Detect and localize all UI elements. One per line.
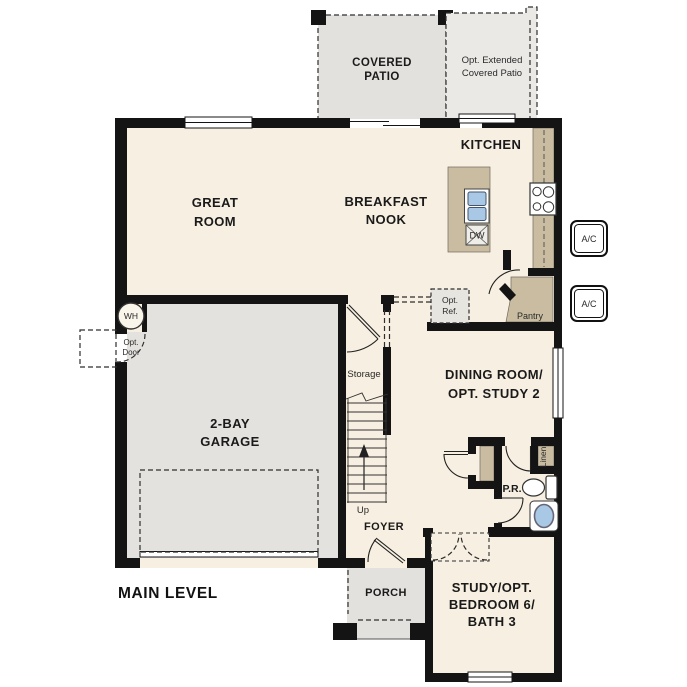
porch-post-right [410,623,433,640]
ac-units: A/C A/C [571,221,607,321]
opt-door-label-1: Opt. [123,338,138,347]
ac-unit-top: A/C [571,221,607,256]
wh-label: WH [124,311,138,321]
study-opt-double-doors [431,533,489,561]
dining-label-2: OPT. STUDY 2 [448,386,540,401]
dining-label-1: DINING ROOM/ [445,367,543,382]
ext-patio-label-1: Opt. Extended [462,55,523,66]
opt-door-label-2: Door [122,348,140,357]
covered-patio-label-2: PATIO [364,71,399,83]
level-label: MAIN LEVEL [118,585,218,602]
garage-label-2: GARAGE [200,434,259,449]
breakfast-nook-label-1: BREAKFAST [344,194,427,209]
great-room-label-1: GREAT [192,195,239,210]
bath-sink [530,501,558,531]
opt-ref-label-1: Opt. [442,295,458,305]
breakfast-nook-label-2: NOOK [366,212,407,227]
great-room-label-2: ROOM [194,214,236,229]
ext-patio-label-2: Covered Patio [462,68,522,79]
foyer-label: FOYER [364,521,404,533]
kitchen-sink [465,189,490,223]
porch-post-left [333,623,357,640]
closet-shelf [480,446,494,481]
patio-post-left [311,10,326,25]
pr-label: P.R. [502,483,521,495]
study-label-1: STUDY/OPT. [452,580,533,595]
porch-label: PORCH [365,587,407,599]
floor-plan: A/C A/C COVERED PATIO Opt. Extended Cove… [0,0,687,687]
ac-bottom-label: A/C [581,299,597,309]
porch-step [357,618,412,639]
linen-label: Linen [538,446,548,467]
opt-ref-label-2: Ref. [442,306,458,316]
garage-label-1: 2-BAY [210,416,250,431]
study-label-2: BEDROOM 6/ [449,597,535,612]
garage-floor [127,304,338,558]
covered-patio-label-1: COVERED [352,57,412,69]
kitchen-label: KITCHEN [461,137,522,152]
study-label-3: BATH 3 [468,614,516,629]
ac-top-label: A/C [581,234,597,244]
range [530,183,556,215]
opt-door-box [80,330,116,367]
pantry-label: Pantry [517,311,544,321]
dw-label: DW [470,231,485,241]
up-label: Up [357,505,369,516]
storage-label: Storage [347,369,380,380]
ac-unit-bottom: A/C [571,286,607,321]
nook-sliding-door [350,119,420,127]
